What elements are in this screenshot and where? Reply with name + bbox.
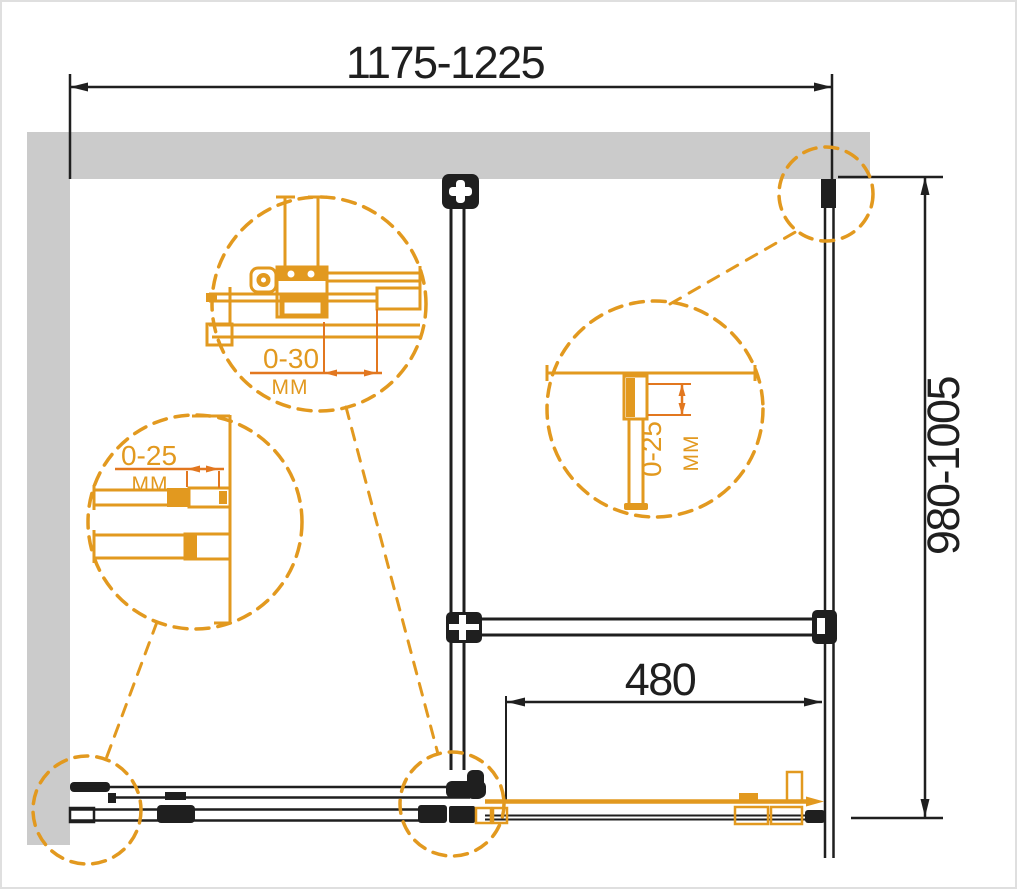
- guide-block: [165, 792, 186, 800]
- telescopic-sleeve: [377, 288, 420, 309]
- sleeve-stop: [219, 491, 227, 504]
- bracket-top-band: [277, 267, 327, 281]
- wall-left: [27, 132, 70, 845]
- detail-leader-line: [106, 622, 157, 759]
- dimension-door-travel: 480: [506, 654, 822, 801]
- fixed-panel-post: [442, 174, 479, 770]
- wall-profile-right: [821, 179, 836, 858]
- detail-circle-mid-profile: [547, 301, 763, 517]
- junction-block: [418, 805, 447, 823]
- adjust-range-label: 0-25: [121, 440, 177, 471]
- adjust-range-label: 0-30: [263, 343, 319, 374]
- bracket-slot: [817, 618, 825, 634]
- shower-enclosure-plan-drawing: 1175-1225 980-1005 480: [2, 2, 1017, 889]
- arrowhead: [364, 370, 377, 377]
- telescopic-insert: [626, 378, 635, 417]
- telescopic-insert: [185, 534, 197, 559]
- adjust-unit-label: MM: [132, 473, 169, 496]
- detail-left-profile: 0-25 MM: [94, 415, 230, 624]
- roller-block: [157, 805, 195, 823]
- arrowhead: [187, 466, 200, 473]
- arrowhead-left: [70, 83, 88, 92]
- wall-top: [27, 132, 870, 179]
- arrowhead-left: [507, 698, 525, 707]
- detail-leader-line: [346, 407, 438, 754]
- telescopic-insert: [167, 488, 189, 507]
- arrowhead: [679, 403, 686, 415]
- wheel-axle: [261, 278, 266, 283]
- screw-icon: [308, 271, 315, 278]
- adjust-unit-label: MM: [272, 376, 309, 399]
- detail-circle-left-profile: [88, 415, 302, 629]
- bottom-track-assembly: [70, 770, 825, 823]
- arrowhead: [679, 384, 686, 396]
- door-top-rail: [446, 610, 837, 644]
- arrowhead-right: [804, 698, 822, 707]
- technical-drawing-page: 1175-1225 980-1005 480: [0, 0, 1017, 889]
- slide-direction-arrow: [806, 797, 824, 807]
- profile-anchor: [821, 179, 836, 208]
- screw-icon: [288, 271, 295, 278]
- door-stop: [805, 810, 825, 823]
- arrowhead: [206, 466, 219, 473]
- arrowhead-top: [921, 177, 930, 195]
- detail-mid-profile: 0-25 MM: [547, 365, 755, 510]
- door-travel-label: 480: [625, 654, 696, 705]
- detail-top-bracket: 0-30 MM: [206, 197, 420, 399]
- door-handle: [787, 772, 802, 801]
- arrowhead: [324, 370, 337, 377]
- junction-block: [449, 806, 475, 823]
- bracket-slot: [449, 624, 479, 630]
- arrowhead-bottom: [921, 799, 930, 817]
- post-foot: [624, 503, 648, 510]
- screw-cross-icon: [449, 187, 472, 196]
- roller-clip: [739, 793, 758, 800]
- adjust-unit-label: MM: [680, 435, 703, 472]
- overall-depth-label: 980-1005: [918, 376, 969, 555]
- detail-leader-line: [670, 230, 799, 304]
- adjust-range-label: 0-25: [636, 421, 667, 477]
- overall-width-label: 1175-1225: [346, 37, 545, 88]
- dimension-overall-depth: 980-1005: [838, 177, 969, 818]
- arrowhead-right: [814, 83, 832, 92]
- junction-bracket: [446, 781, 486, 798]
